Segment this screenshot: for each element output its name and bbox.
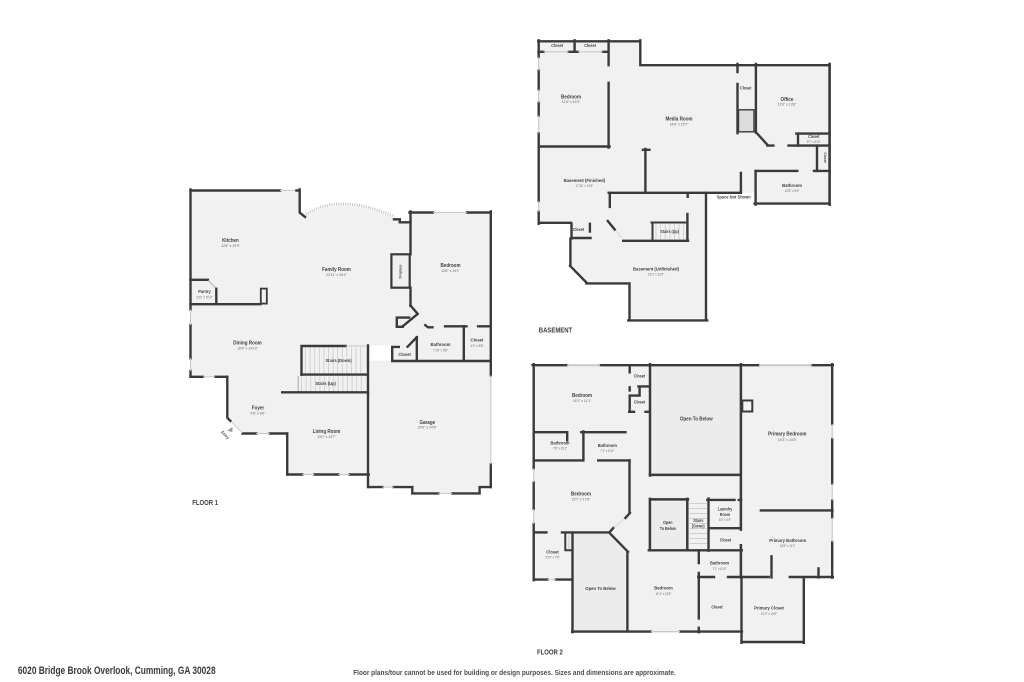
svg-text:Pantry: Pantry: [198, 289, 211, 294]
svg-text:Closet: Closet: [823, 152, 827, 163]
svg-text:15'7" x 17'8": 15'7" x 17'8": [572, 497, 591, 502]
svg-text:Open To Below: Open To Below: [680, 416, 714, 422]
svg-text:11'3" x 13'8": 11'3" x 13'8": [656, 592, 672, 596]
svg-text:6020 Bridge Brook Overlook, Cu: 6020 Bridge Brook Overlook, Cumming, GA …: [18, 665, 216, 677]
svg-text:Primary Closet: Primary Closet: [754, 606, 784, 612]
svg-text:FLOOR 1: FLOOR 1: [192, 498, 218, 507]
svg-text:7'1" x 8'11": 7'1" x 8'11": [600, 449, 615, 453]
svg-text:5'10" x 7'8": 5'10" x 7'8": [545, 556, 560, 560]
svg-text:12'6" x 13'8": 12'6" x 13'8": [778, 102, 797, 107]
svg-text:5'7" x 5'10": 5'7" x 5'10": [807, 140, 821, 144]
svg-text:Closet: Closet: [808, 134, 820, 139]
svg-text:FLOOR 2: FLOOR 2: [537, 648, 563, 657]
svg-text:Bathroom: Bathroom: [598, 443, 617, 448]
svg-text:Fireplace: Fireplace: [399, 265, 403, 279]
svg-text:To Below: To Below: [660, 526, 677, 531]
svg-text:23'3" x 31'6": 23'3" x 31'6": [648, 272, 665, 276]
svg-text:Primary Bathroom: Primary Bathroom: [769, 538, 806, 544]
svg-text:7'1" x 8'10": 7'1" x 8'10": [712, 567, 727, 571]
svg-text:11'8" x 14'3": 11'8" x 14'3": [562, 99, 581, 104]
svg-text:Room: Room: [720, 512, 731, 517]
svg-text:Closet: Closet: [584, 43, 596, 48]
svg-text:Closet: Closet: [634, 373, 646, 378]
svg-text:Space Not Shown: Space Not Shown: [717, 195, 751, 200]
svg-text:Floor plans/tour cannot be use: Floor plans/tour cannot be used for buil…: [353, 670, 676, 677]
svg-text:Closet: Closet: [740, 86, 752, 91]
svg-text:2'11" x 5'10": 2'11" x 5'10": [196, 296, 213, 300]
svg-text:Closet: Closet: [711, 605, 723, 610]
svg-text:Closet: Closet: [551, 43, 563, 48]
svg-text:20'9" x 24'6": 20'9" x 24'6": [418, 425, 437, 430]
svg-text:Bedroom: Bedroom: [654, 586, 673, 592]
svg-text:Open: Open: [663, 520, 673, 525]
svg-text:(Down): (Down): [692, 523, 705, 528]
svg-text:Open To Below: Open To Below: [585, 586, 616, 592]
svg-text:Stairs (Down): Stairs (Down): [325, 358, 352, 363]
svg-text:Closet: Closet: [471, 338, 484, 344]
svg-text:Stairs: Stairs: [693, 518, 704, 523]
svg-text:Bathroom: Bathroom: [782, 183, 802, 189]
svg-text:24'8" x 25'7": 24'8" x 25'7": [670, 122, 689, 127]
svg-text:13'6" x 19'1": 13'6" x 19'1": [441, 268, 460, 273]
svg-text:Closet: Closet: [634, 399, 646, 404]
svg-text:7'10" x 5'6": 7'10" x 5'6": [433, 348, 448, 352]
svg-text:Laundry: Laundry: [718, 506, 733, 511]
svg-text:Closet: Closet: [573, 227, 585, 232]
svg-text:Bathroom: Bathroom: [710, 561, 729, 566]
svg-text:18'4" x 14'10": 18'4" x 14'10": [237, 345, 258, 350]
svg-text:7'8" x 8'11": 7'8" x 8'11": [553, 447, 568, 451]
svg-text:10'2" x 10'8": 10'2" x 10'8": [761, 612, 778, 616]
svg-text:BASEMENT: BASEMENT: [539, 325, 573, 334]
svg-text:Closet: Closet: [720, 537, 732, 542]
svg-text:9'8" x 8'6": 9'8" x 8'6": [251, 410, 267, 415]
svg-text:12'8" x 5'4": 12'8" x 5'4": [785, 189, 800, 193]
svg-text:Closet: Closet: [546, 550, 559, 555]
svg-text:Stairs (Up): Stairs (Up): [315, 381, 336, 386]
svg-text:Basement (Finished): Basement (Finished): [564, 178, 606, 184]
svg-text:Bathroom: Bathroom: [431, 342, 451, 348]
svg-text:17'11" x 12'6": 17'11" x 12'6": [576, 184, 594, 188]
svg-text:12'6" x 19'0": 12'6" x 19'0": [221, 243, 240, 248]
svg-text:5'3" x 4'9": 5'3" x 4'9": [719, 518, 731, 522]
svg-text:Closet: Closet: [399, 352, 412, 357]
svg-text:Stairs (Up): Stairs (Up): [660, 229, 679, 234]
svg-text:23'11" x 26'4": 23'11" x 26'4": [326, 272, 347, 277]
svg-text:4'3" x 5'8": 4'3" x 5'8": [471, 344, 485, 348]
svg-text:15'3" x 24'5": 15'3" x 24'5": [778, 437, 797, 442]
svg-text:16'1" x 11'1": 16'1" x 11'1": [573, 398, 592, 403]
svg-text:15'5" x 11'1": 15'5" x 11'1": [780, 544, 796, 548]
svg-text:Bathroom: Bathroom: [550, 441, 569, 446]
svg-text:Basement (Unfinished): Basement (Unfinished): [633, 266, 679, 272]
svg-text:13'0" x 13'7": 13'0" x 13'7": [317, 434, 336, 439]
